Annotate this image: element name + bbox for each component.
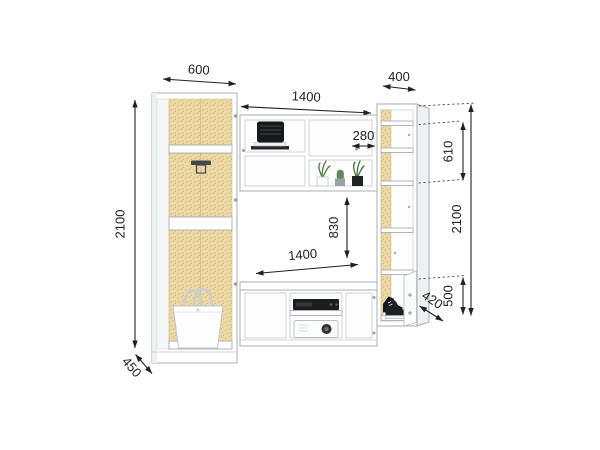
wardrobe-mid-rail [169,217,232,230]
tv-stand [240,282,377,346]
hinge-dot [234,282,237,285]
shelf-pin [394,252,396,254]
column-shelf [381,228,413,233]
dimension-wardrobe-depth: 450 [119,354,152,380]
shelf-pin [408,134,410,136]
projector [294,321,338,338]
stand-compartment-right [346,293,372,338]
hinge-dot [234,114,237,117]
av-receiver [293,299,339,310]
dimension-label: 610 [441,141,456,163]
dimension-label: 450 [119,354,145,380]
column-shelf [381,270,413,275]
shelving-column [377,104,429,326]
dimension-column-total-height: 2100 [449,105,471,316]
books-stack [251,143,289,150]
speaker-box [257,122,284,143]
dimension-arrow [256,265,358,274]
dimension-label: 280 [353,128,375,143]
bridge-unit [240,115,377,191]
hinge-dot [373,332,376,335]
dimension-wardrobe-total-height: 2100 [113,100,136,348]
dimension-label: 600 [187,61,210,77]
dimension-column-base-height: 500 [441,278,464,315]
dimension-label: 830 [326,217,341,239]
furniture-dimension-diagram: 600 1400 400 280 830 1400 450 420 500 61… [0,0,600,450]
dimension-tv-opening-width: 1400 [256,246,358,274]
hinge-dot [234,198,237,201]
dimension-arrow [163,79,236,84]
column-shelf [381,121,413,126]
bridge-shelf-bottom-left [245,156,305,186]
column-shelf [381,148,413,153]
dimension-label: 2100 [449,205,464,234]
wardrobe [152,93,237,363]
dimension-arrow [241,107,371,114]
dimension-label: 1400 [291,88,321,104]
dimension-label: 2100 [113,210,128,239]
dimension-label: 500 [441,285,456,307]
dimension-label: 1400 [288,246,318,263]
hinge-dot [373,296,376,299]
dimension-arrow [383,86,416,90]
wardrobe-top-shelf [169,145,232,153]
dimension-label: 400 [388,69,410,84]
wardrobe-inner-side [157,99,169,349]
wardrobe-left-edge [152,93,157,363]
column-back-panel [381,110,391,321]
stand-compartment-left [245,293,286,338]
dimension-bridge-width: 1400 [241,88,371,113]
stand-middle-shelf [290,311,342,316]
hinge-dot [355,148,358,151]
dimension-wardrobe-width: 600 [163,61,236,84]
column-open-door [404,271,417,326]
hinge-dot [242,149,245,152]
column-shelf [381,181,413,186]
dimension-tv-opening-height: 830 [326,198,347,259]
diagram-canvas: 600 1400 400 280 830 1400 450 420 500 61… [0,0,600,450]
dimension-column-width: 400 [383,69,416,90]
leader-top [419,103,476,106]
dimension-column-upper-height: 610 [441,123,464,181]
shelf-pin [408,206,410,208]
